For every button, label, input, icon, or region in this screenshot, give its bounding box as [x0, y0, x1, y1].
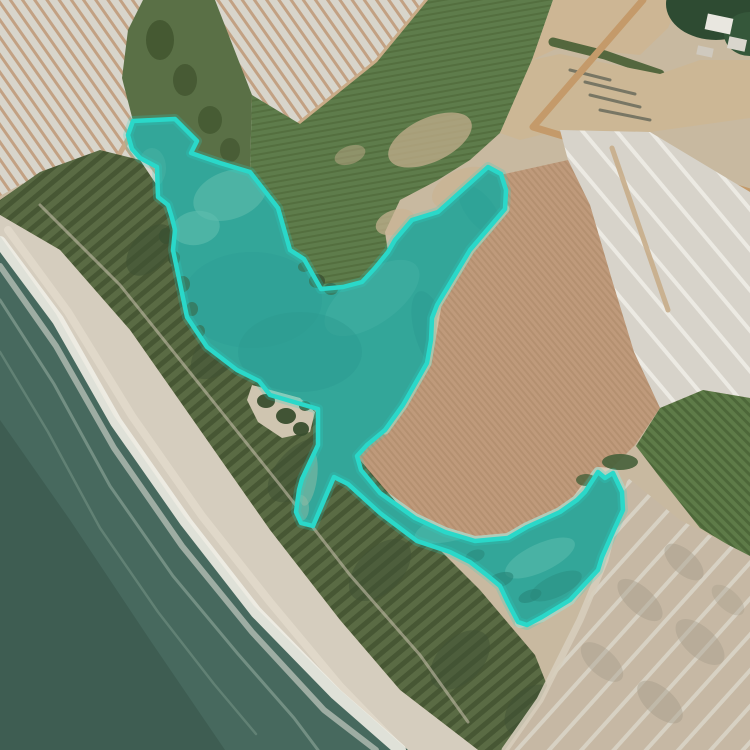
map-viewport[interactable]: [0, 0, 750, 750]
satellite-map: [0, 0, 750, 750]
